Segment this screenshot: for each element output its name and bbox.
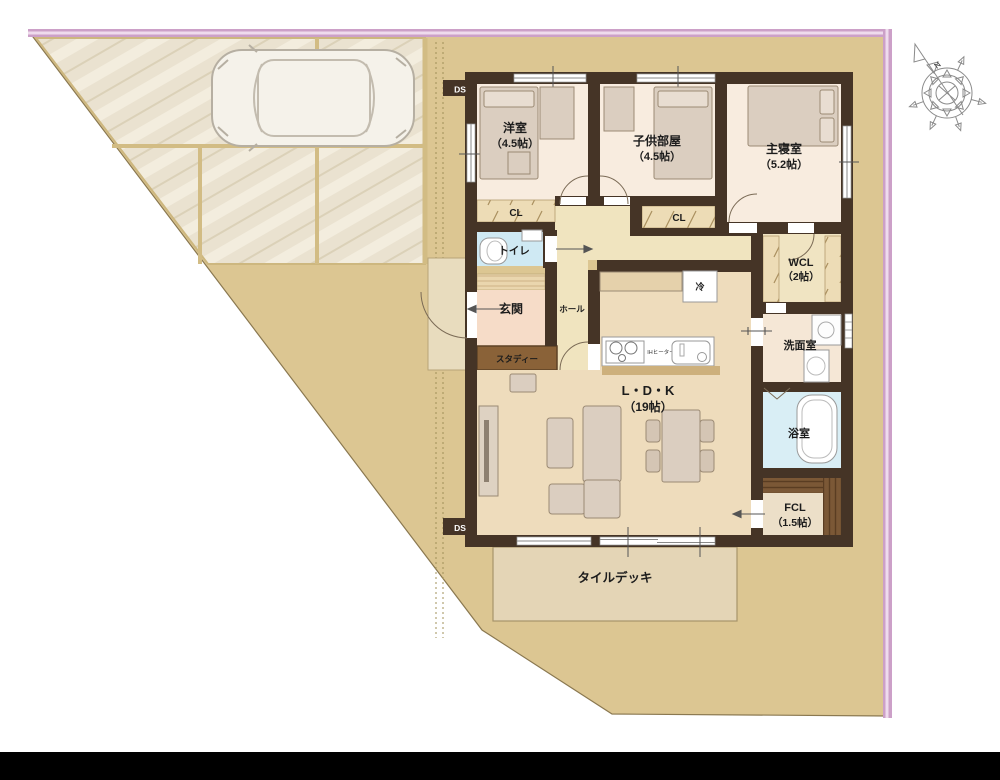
car-icon: [212, 45, 414, 151]
senmenshitsu-label: 洗面室: [784, 338, 817, 352]
study-label: スタディー: [496, 354, 538, 364]
shushinshitsu-label: 主寝室: [766, 141, 802, 156]
genkan-step: [477, 274, 545, 290]
genkan-floor: [477, 290, 545, 346]
hall-label: ホール: [559, 304, 585, 314]
ldk-size: （19帖）: [623, 399, 672, 414]
compass-icon: N: [908, 44, 986, 132]
kitchen-cupboard: [600, 272, 682, 291]
bottom-black-band: [0, 752, 1000, 780]
ldk-label: L・D・K: [622, 383, 675, 398]
hall-upper-floor: [555, 206, 630, 236]
stool-yoshitsu: [508, 152, 530, 174]
floor-plan-svg: タイルデッキ: [0, 0, 1000, 780]
sofa: [547, 406, 621, 518]
desk-kodomobeya: [604, 87, 634, 131]
fcl-size: （1.5帖）: [772, 516, 818, 529]
kodomobeya-label: 子供部屋: [633, 133, 681, 148]
cl2-label: CL: [672, 213, 685, 224]
tile-deck-label: タイルデッキ: [577, 570, 652, 585]
shushinshitsu-size: （5.2帖）: [760, 157, 808, 171]
fcl-shelf-right: [823, 478, 841, 535]
entrance-porch: [428, 258, 467, 370]
floor-plan-page: タイルデッキ: [0, 0, 1000, 780]
wcl-closet-left: [763, 236, 779, 302]
bed-shushinshitsu: [748, 86, 838, 146]
genkan-label: 玄関: [499, 301, 523, 316]
cl1-label: CL: [509, 208, 522, 219]
ds-bottom-label: DS: [454, 523, 466, 533]
yoshitsu-size: （4.5帖）: [491, 136, 539, 150]
yoshitsu-label: 洋室: [503, 120, 527, 135]
fcl-label: FCL: [784, 502, 806, 514]
building: 冷 IHヒーター 洋室 （4.5帖）: [421, 66, 859, 557]
kodomobeya-size: （4.5帖）: [633, 149, 681, 163]
toilet-sink: [522, 230, 542, 241]
yokushitsu-label: 浴室: [788, 426, 810, 440]
ih-label: IHヒーター: [647, 348, 675, 356]
wcl-size: （2帖）: [782, 270, 819, 283]
desk-yoshitsu: [540, 87, 574, 139]
wcl-label: WCL: [788, 257, 813, 269]
ds-top-label: DS: [454, 85, 466, 95]
kitchen-counter-front: [602, 366, 720, 375]
bed-kodomobeya: [654, 87, 712, 179]
fridge-label: 冷: [695, 281, 704, 292]
toilet-label: トイレ: [498, 245, 530, 257]
hall-floor: [557, 260, 588, 372]
fcl-shelf-top: [763, 478, 823, 493]
wcl-closet-right: [825, 236, 841, 302]
study-chair: [510, 374, 536, 392]
tv-board: [479, 406, 498, 496]
